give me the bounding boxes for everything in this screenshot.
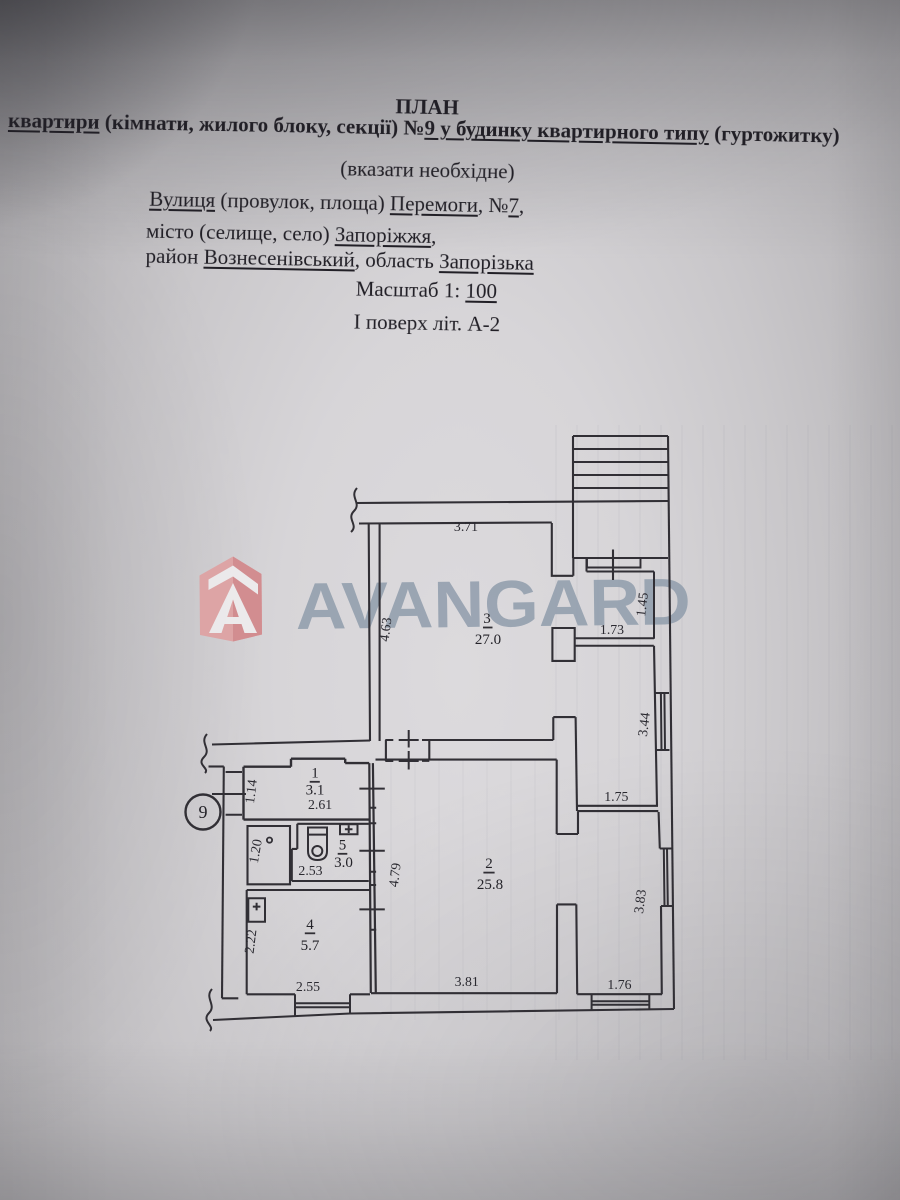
svg-text:3.71: 3.71 xyxy=(454,519,478,534)
svg-text:1.73: 1.73 xyxy=(600,622,624,637)
svg-text:5: 5 xyxy=(339,838,347,854)
svg-text:3.44: 3.44 xyxy=(635,711,653,737)
svg-text:1.20: 1.20 xyxy=(246,838,265,864)
svg-text:1.76: 1.76 xyxy=(607,977,631,992)
svg-text:3: 3 xyxy=(483,611,491,627)
svg-text:3.81: 3.81 xyxy=(455,974,479,989)
svg-text:9: 9 xyxy=(199,802,208,822)
svg-text:1.14: 1.14 xyxy=(242,778,260,804)
svg-text:5.7: 5.7 xyxy=(301,938,320,954)
svg-text:3.83: 3.83 xyxy=(631,888,649,914)
svg-text:4.63: 4.63 xyxy=(377,616,395,642)
svg-text:1: 1 xyxy=(311,766,319,782)
svg-text:1.75: 1.75 xyxy=(604,789,628,804)
svg-text:1.45: 1.45 xyxy=(633,591,651,617)
svg-text:2.61: 2.61 xyxy=(308,797,332,812)
svg-text:3.0: 3.0 xyxy=(334,855,353,871)
svg-text:2.55: 2.55 xyxy=(296,979,320,994)
svg-text:4.79: 4.79 xyxy=(386,862,404,888)
svg-text:2: 2 xyxy=(485,856,493,872)
svg-text:4: 4 xyxy=(306,917,314,933)
svg-text:25.8: 25.8 xyxy=(477,877,503,893)
svg-text:2.53: 2.53 xyxy=(298,863,322,878)
svg-text:27.0: 27.0 xyxy=(475,632,501,648)
svg-text:2.22: 2.22 xyxy=(242,928,260,954)
